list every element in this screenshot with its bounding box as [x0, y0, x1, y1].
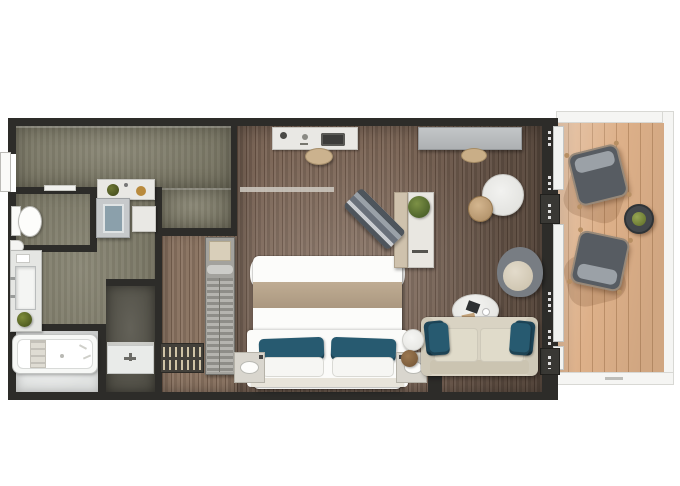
faucet-icon [10, 295, 15, 298]
dot-icon [280, 132, 287, 139]
bath-side-unit [132, 206, 156, 232]
chair-leg [564, 152, 570, 158]
deck-lounge-chair [569, 229, 631, 293]
tray-icon [466, 300, 481, 314]
railing-joint [605, 377, 623, 380]
wall-bottom [8, 392, 558, 400]
shelf-drawer [207, 265, 233, 274]
pen-icon [300, 143, 308, 145]
chair-cushion [576, 263, 618, 286]
wc-door-leaf [44, 185, 76, 191]
floor-plan [0, 0, 680, 486]
armchair [497, 247, 543, 297]
wall-hallway-bedroom [231, 126, 237, 236]
dot-icon [302, 134, 308, 140]
wall-shower-north [106, 279, 162, 286]
drain-icon [60, 354, 64, 358]
dot-icon [124, 183, 128, 187]
side-table [402, 329, 424, 351]
pillow-teal [509, 322, 531, 355]
entry-door [0, 152, 11, 192]
dining-stool [468, 196, 493, 222]
sofa-backrest [430, 360, 529, 374]
chair-cushion [574, 150, 616, 174]
curtain-icon [548, 292, 551, 312]
curtain-icon [548, 330, 551, 345]
plant-icon [17, 312, 32, 327]
drain-icon [129, 353, 132, 361]
armchair-cushion [503, 261, 533, 291]
wall-top [8, 118, 558, 126]
washbasin [15, 266, 36, 310]
lamp-icon [240, 361, 259, 374]
bath-cabinet [97, 179, 155, 200]
balcony-railing-top [556, 111, 674, 123]
nightstand-left [234, 352, 265, 383]
balcony-glass-door [553, 224, 564, 342]
chair-leg [578, 227, 584, 233]
shower-room-floor [106, 286, 155, 392]
shelf-slats [207, 278, 233, 372]
balcony-glass-panel [553, 126, 564, 190]
bed-runner [253, 282, 402, 308]
desk-stool [305, 148, 333, 165]
wall-bathtub-shower [98, 324, 106, 392]
plant-icon [408, 196, 430, 218]
faucet-icon [10, 277, 15, 280]
sofa [421, 317, 538, 376]
plant-icon [107, 184, 119, 196]
shelf-tower [205, 237, 235, 375]
curtain-icon [548, 356, 551, 369]
curtain-icon [548, 131, 551, 149]
hanger-row [163, 347, 201, 357]
wardrobe-hangers [160, 343, 204, 373]
hanger-row [163, 360, 201, 370]
pillow-white-left [262, 357, 324, 377]
shelf-divider [219, 278, 220, 372]
switch-icon [259, 355, 263, 359]
handle-icon [412, 250, 428, 253]
wall-closet-north [155, 228, 237, 236]
dressing-desk [272, 127, 358, 150]
entry-hallway-extension-floor [162, 188, 231, 230]
shower-stall [96, 198, 130, 238]
curtain-icon [548, 204, 551, 220]
bathtub-faucet-deck [30, 340, 46, 368]
curtain-icon [548, 176, 551, 190]
console-stool [461, 148, 487, 163]
shelf-box [209, 241, 231, 261]
pillow-white-right [332, 357, 394, 377]
pouf [401, 350, 418, 367]
tray-icon [136, 186, 146, 196]
shower-glass [103, 204, 124, 233]
toilet-bowl [18, 206, 42, 237]
headboard [251, 378, 404, 387]
plant-icon [632, 212, 646, 226]
console-cabinet [418, 127, 522, 150]
dish-icon [482, 308, 490, 316]
balcony-table [624, 204, 654, 234]
bedroom-door-track [240, 187, 334, 192]
tray-icon [321, 133, 345, 146]
soap-tray [16, 254, 30, 263]
pillow-teal [428, 322, 450, 355]
bathtub-basin [17, 339, 93, 369]
